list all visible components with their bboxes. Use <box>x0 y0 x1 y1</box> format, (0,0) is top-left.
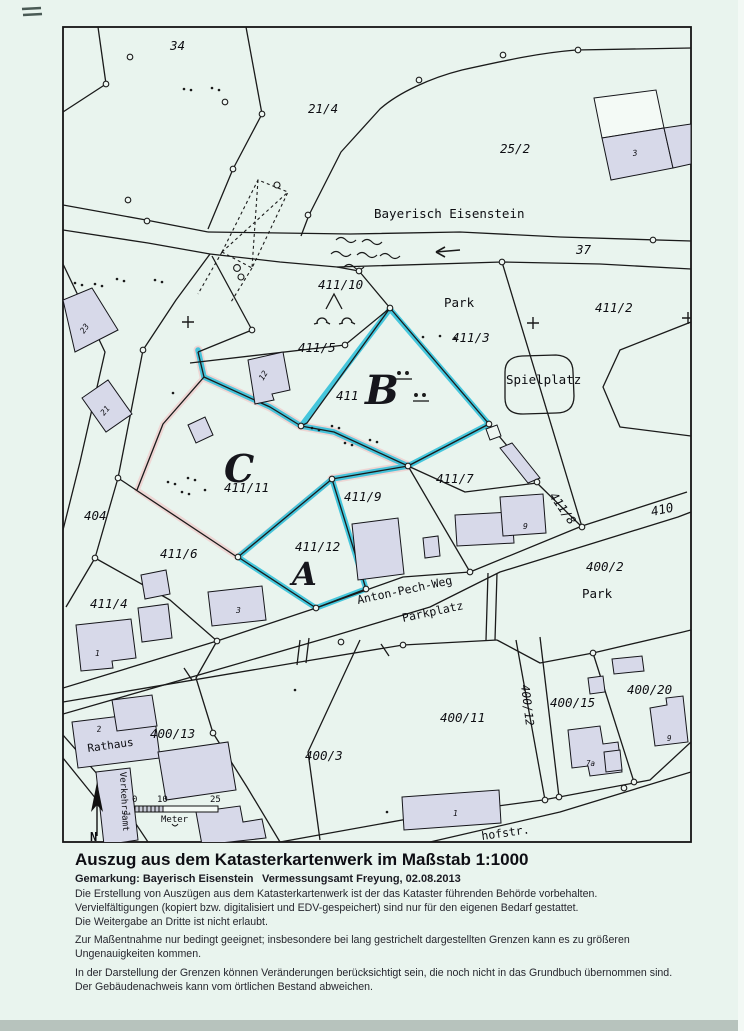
scale-tick-0: 0 <box>132 795 137 805</box>
parcel-label-404: 404 <box>84 508 107 523</box>
building <box>248 352 290 404</box>
note-line: Der Gebäudenachweis kann vom örtlichen B… <box>75 981 705 995</box>
parcel-label-411-5: 411/5 <box>298 340 336 355</box>
scale-unit: Meter <box>161 815 189 825</box>
street-label-parkplatz: Parkplatz <box>401 598 465 625</box>
scan-edge-shadow <box>0 1020 744 1031</box>
building <box>141 570 170 599</box>
building <box>138 604 172 642</box>
boundary-marks <box>396 372 429 401</box>
parcel-label-34: 34 <box>169 38 185 53</box>
parcel-label-400-20: 400/20 <box>627 682 672 697</box>
place-label-park-lower: Park <box>582 586 613 601</box>
building <box>158 742 236 800</box>
place-label-park-upper: Park <box>444 295 475 310</box>
building <box>604 750 622 772</box>
parcel-label-411-2: 411/2 <box>595 300 633 315</box>
tree-symbols <box>314 294 355 324</box>
peak-symbol <box>326 294 342 309</box>
parcel-label-411: 411 <box>336 388 359 403</box>
parcel-label-411-4: 411/4 <box>90 596 128 611</box>
note-line: Zur Maßentnahme nur bedingt geeignet; in… <box>75 934 641 962</box>
house-number: 3 <box>235 606 241 615</box>
parcel-label-400-15: 400/15 <box>550 695 595 710</box>
survey-points <box>92 47 656 803</box>
parcel-label-400-12: 400/12 <box>518 684 537 727</box>
parcel-label-25-2: 25/2 <box>500 141 530 156</box>
note-line: In der Darstellung der Grenzen können Ve… <box>75 967 705 981</box>
document-title: Auszug aus dem Katasterkartenwerk im Maß… <box>75 850 529 870</box>
parcel-label-400-2: 400/2 <box>586 559 624 574</box>
annotation-letter-a: A <box>289 555 317 593</box>
annotation-letter-c: C <box>224 446 254 491</box>
parcel-label-411-3: 411/3 <box>452 330 490 345</box>
road-label-410: 410 <box>650 500 675 519</box>
parcel-label-411-10: 411/10 <box>318 277 363 292</box>
parcel-label-411-12: 411/12 <box>295 539 340 554</box>
legal-notes: Die Erstellung von Auszügen aus dem Kata… <box>75 888 705 995</box>
note-line: Die Erstellung von Auszügen aus dem Kata… <box>75 888 705 902</box>
scan-marks <box>22 8 42 15</box>
building <box>402 790 501 830</box>
scanned-cadastral-extract: 34 21/4 25/2 Hauptstraße (B 11) Bayerisc… <box>0 0 744 1031</box>
building <box>76 619 136 671</box>
north-label: N <box>90 830 97 844</box>
house-number: 9 <box>523 522 528 531</box>
house-number: 1 <box>453 809 458 818</box>
building <box>188 417 213 443</box>
parcel-label-400-13: 400/13 <box>150 726 195 741</box>
building <box>423 536 440 558</box>
building <box>588 676 605 694</box>
house-number: 1 <box>95 649 100 658</box>
building-verkehrsamt <box>96 768 138 845</box>
place-label-bayerisch-eisenstein: Bayerisch Eisenstein <box>374 206 525 221</box>
dashed-bridge-outline <box>198 180 288 302</box>
building <box>500 443 540 483</box>
street-label-hauptstrasse: Hauptstraße (B 11) <box>548 14 667 27</box>
parcel-label-411-7: 411/7 <box>436 471 474 486</box>
annotation-letter-b: B <box>364 367 399 414</box>
parcel-label-411-8: 411/8 <box>547 490 579 528</box>
cadastral-map: 34 21/4 25/2 Hauptstraße (B 11) Bayerisc… <box>0 0 744 845</box>
parcel-label-411-9: 411/9 <box>344 489 382 504</box>
building <box>612 656 644 674</box>
parcel-label-400-11: 400/11 <box>440 710 485 725</box>
building <box>352 518 404 580</box>
parcel-label-411-6: 411/6 <box>160 546 198 561</box>
house-number: 7a <box>586 759 595 768</box>
note-line: Die Weitergabe an Dritte ist nicht erlau… <box>75 916 705 930</box>
gemarkung-line: Gemarkung: Bayerisch Eisenstein <box>75 873 254 885</box>
scale-tick-10: 10 <box>157 795 168 805</box>
building <box>63 288 118 352</box>
left-arrow <box>436 247 460 257</box>
house-number: 9 <box>667 734 672 743</box>
parcel-label-21-4: 21/4 <box>308 101 338 116</box>
survey-office-line: Vermessungsamt Freyung, 02.08.2013 <box>262 873 461 885</box>
place-label-spielplatz: Spielplatz <box>506 372 581 387</box>
road-label-37: 37 <box>575 242 592 257</box>
note-line: Vervielfältigungen (kopiert bzw. digital… <box>75 902 705 916</box>
street-label-hofstr: hofstr. <box>480 822 530 843</box>
scale-tick-25: 25 <box>210 795 221 805</box>
parcel-label-400-3: 400/3 <box>305 748 343 763</box>
scan-edge-light <box>738 0 744 1031</box>
bridge-survey-points <box>234 182 280 280</box>
stream-waves <box>331 238 400 270</box>
